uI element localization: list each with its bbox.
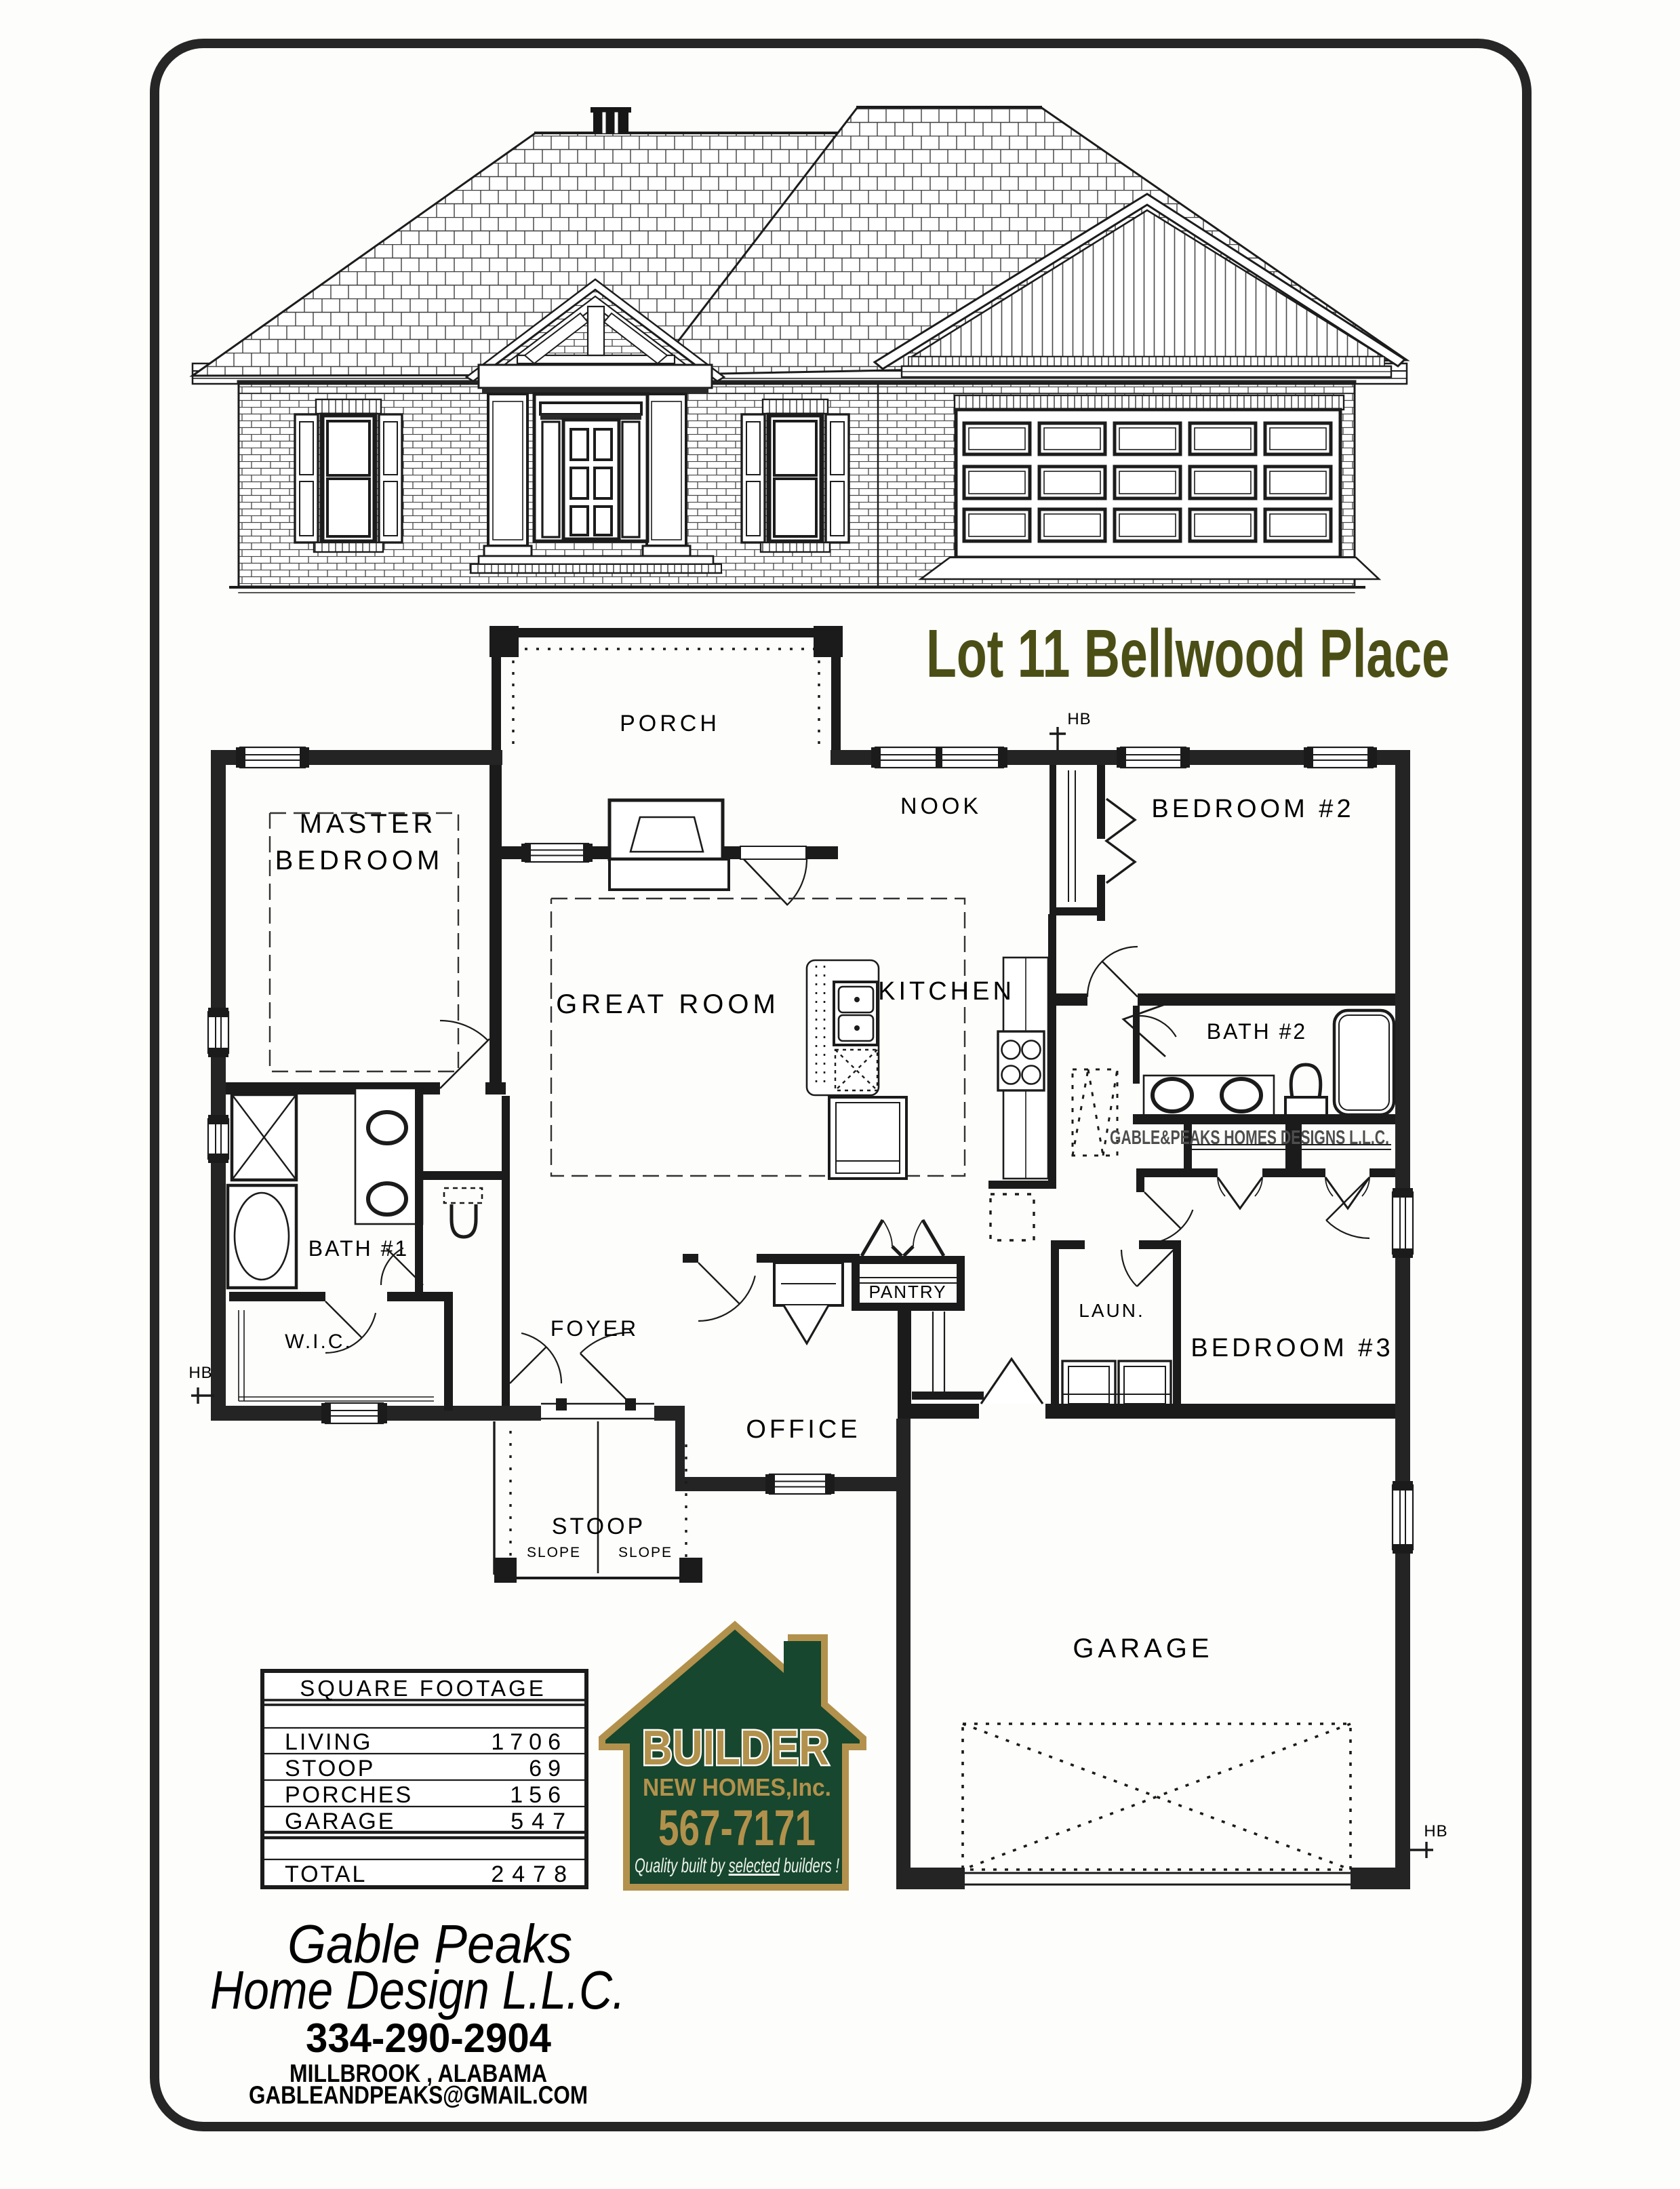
svg-text:LIVING: LIVING xyxy=(285,1729,372,1755)
svg-text:HB: HB xyxy=(1424,1822,1447,1840)
svg-text:BEDROOM #3: BEDROOM #3 xyxy=(1191,1334,1393,1362)
svg-text:156: 156 xyxy=(510,1782,567,1808)
svg-text:567-7171: 567-7171 xyxy=(658,1800,816,1856)
svg-text:HB: HB xyxy=(1067,710,1091,728)
svg-text:HB: HB xyxy=(188,1364,212,1382)
svg-text:2478: 2478 xyxy=(491,1861,575,1887)
svg-text:GREAT ROOM: GREAT ROOM xyxy=(556,989,780,1019)
svg-text:LAUN.: LAUN. xyxy=(1079,1300,1144,1321)
svg-text:NEW HOMES,Inc.: NEW HOMES,Inc. xyxy=(643,1773,831,1801)
svg-text:NOOK: NOOK xyxy=(900,793,982,819)
svg-text:GARAGE: GARAGE xyxy=(1073,1634,1213,1663)
svg-text:KITCHEN: KITCHEN xyxy=(878,977,1015,1006)
svg-text:SQUARE FOOTAGE: SQUARE FOOTAGE xyxy=(300,1676,546,1701)
svg-text:334-290-2904: 334-290-2904 xyxy=(306,2015,552,2061)
svg-text:69: 69 xyxy=(529,1756,567,1781)
svg-text:Quality built by selected buil: Quality built by selected builders ! xyxy=(635,1855,839,1877)
svg-text:GARAGE: GARAGE xyxy=(285,1809,395,1834)
svg-text:Home Design L.L.C.: Home Design L.L.C. xyxy=(210,1960,625,2020)
svg-text:MASTER: MASTER xyxy=(300,809,437,839)
svg-text:PANTRY: PANTRY xyxy=(868,1282,946,1302)
svg-text:SLOPE: SLOPE xyxy=(527,1545,581,1560)
svg-text:1706: 1706 xyxy=(491,1729,567,1755)
svg-text:BEDROOM #2: BEDROOM #2 xyxy=(1151,795,1354,823)
svg-text:FOYER: FOYER xyxy=(551,1316,639,1341)
svg-text:BUILDER: BUILDER xyxy=(642,1721,829,1775)
svg-text:PORCHES: PORCHES xyxy=(285,1782,413,1808)
svg-text:STOOP: STOOP xyxy=(285,1756,375,1781)
svg-text:547: 547 xyxy=(511,1809,574,1834)
svg-text:GABLEANDPEAKS@GMAIL.COM: GABLEANDPEAKS@GMAIL.COM xyxy=(249,2081,588,2109)
svg-text:SLOPE: SLOPE xyxy=(618,1545,673,1560)
svg-text:PORCH: PORCH xyxy=(620,711,720,736)
svg-text:BEDROOM: BEDROOM xyxy=(275,846,444,875)
svg-text:W.I.C.: W.I.C. xyxy=(285,1330,353,1353)
svg-text:GABLE&PEAKS HOMES DESIGNS L.L.: GABLE&PEAKS HOMES DESIGNS L.L.C. xyxy=(1110,1127,1389,1149)
svg-text:BATH #2: BATH #2 xyxy=(1207,1019,1307,1044)
svg-text:STOOP: STOOP xyxy=(552,1514,645,1539)
svg-text:Lot 11 Bellwood Place: Lot 11 Bellwood Place xyxy=(926,616,1449,692)
svg-text:TOTAL: TOTAL xyxy=(285,1861,367,1887)
svg-text:OFFICE: OFFICE xyxy=(746,1415,860,1444)
